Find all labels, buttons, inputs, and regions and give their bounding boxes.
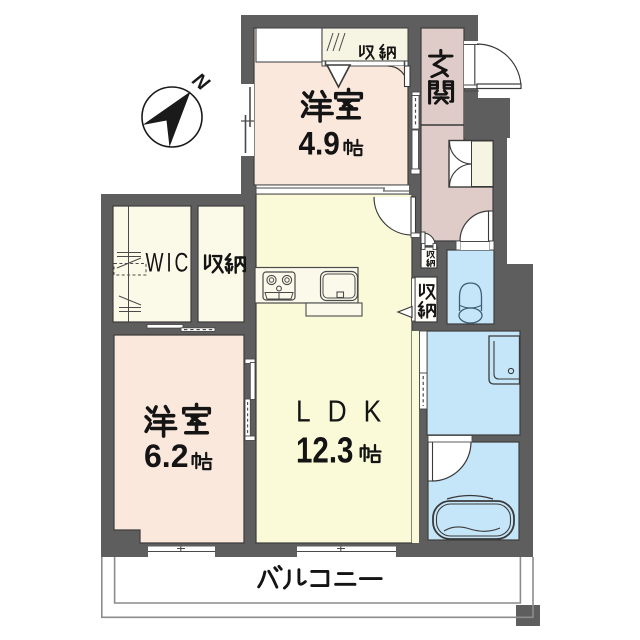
svg-text:12.3: 12.3 — [296, 430, 353, 470]
svg-text:LDK: LDK — [296, 395, 398, 429]
svg-text:6.2: 6.2 — [144, 438, 188, 474]
svg-text:4.9: 4.9 — [299, 126, 340, 162]
svg-text:WIC: WIC — [146, 247, 192, 277]
